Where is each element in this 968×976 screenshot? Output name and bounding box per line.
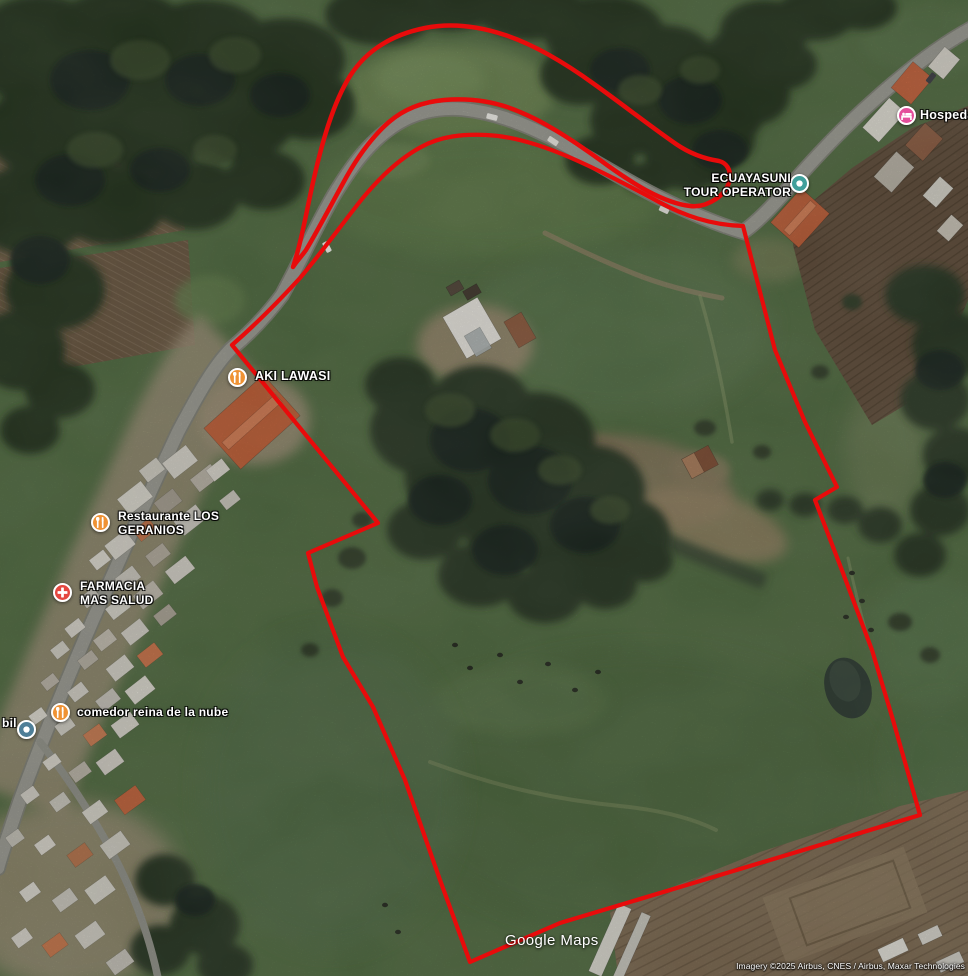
google-maps-watermark: Google Maps bbox=[505, 932, 599, 949]
poi-marker-hospedaje[interactable] bbox=[897, 106, 916, 125]
poi-label-aki-lawasi[interactable]: AKI LAWASI bbox=[255, 369, 330, 384]
poi-label-hospedaje[interactable]: Hospedaje bbox=[920, 108, 968, 123]
poi-label-bil-partial[interactable]: bil bbox=[2, 716, 17, 730]
poi-label-comedor-reina-de-la-nube[interactable]: comedor reina de la nube bbox=[77, 705, 228, 719]
poi-label-farmacia-mas-salud[interactable]: FARMACIAMAS SALUD bbox=[80, 579, 154, 607]
poi-marker-farmacia-mas-salud[interactable] bbox=[53, 583, 72, 602]
poi-label-line: GERANIOS bbox=[118, 523, 219, 537]
poi-label-line: bil bbox=[2, 716, 17, 730]
satellite-imagery bbox=[0, 0, 968, 976]
poi-marker-ecuayasuni-tour-operator[interactable] bbox=[790, 174, 809, 193]
poi-label-line: comedor reina de la nube bbox=[77, 705, 228, 719]
poi-label-ecuayasuni-tour-operator[interactable]: ECUAYASUNITOUR OPERATOR bbox=[684, 171, 791, 199]
poi-label-line: AKI LAWASI bbox=[255, 369, 330, 384]
poi-marker-comedor-reina-de-la-nube[interactable] bbox=[51, 703, 70, 722]
poi-marker-bil-partial[interactable] bbox=[17, 720, 36, 739]
poi-label-restaurante-los-geranios[interactable]: Restaurante LOSGERANIOS bbox=[118, 509, 219, 537]
poi-label-line: Restaurante LOS bbox=[118, 509, 219, 523]
imagery-attribution: Imagery ©2025 Airbus, CNES / Airbus, Max… bbox=[736, 961, 965, 971]
map-viewport[interactable]: ECUAYASUNITOUR OPERATORHospedajeAKI LAWA… bbox=[0, 0, 968, 976]
poi-label-line: Hospedaje bbox=[920, 108, 968, 123]
poi-label-line: ECUAYASUNI bbox=[684, 171, 791, 185]
poi-label-line: FARMACIA bbox=[80, 579, 154, 593]
poi-marker-restaurante-los-geranios[interactable] bbox=[91, 513, 110, 532]
poi-marker-aki-lawasi[interactable] bbox=[228, 368, 247, 387]
poi-label-line: TOUR OPERATOR bbox=[684, 185, 791, 199]
poi-label-line: MAS SALUD bbox=[80, 593, 154, 607]
